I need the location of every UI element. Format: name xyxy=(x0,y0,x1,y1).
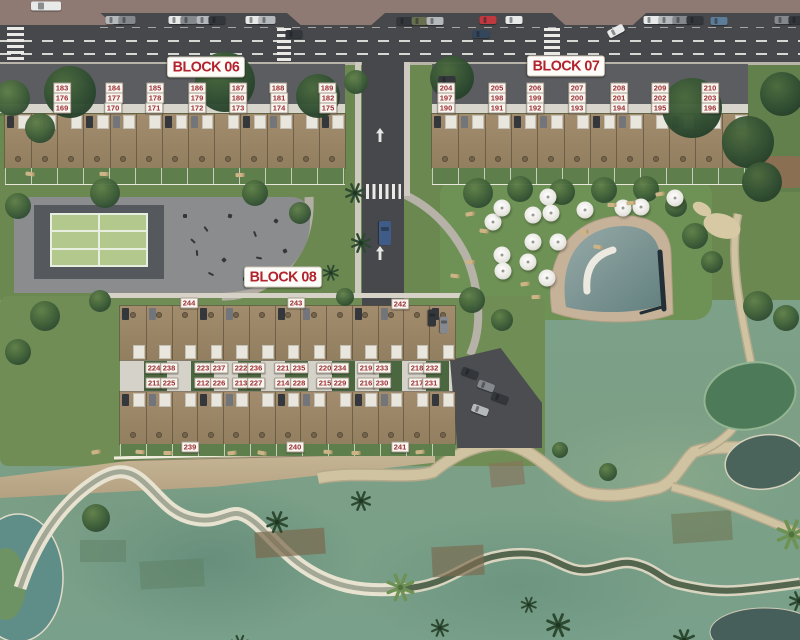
unit-terrace xyxy=(391,393,402,407)
sun-lounger-icon xyxy=(531,295,540,299)
garden-table-icon xyxy=(329,156,335,162)
tree-icon xyxy=(82,504,110,532)
garden-table-icon xyxy=(388,312,394,318)
unit-label-170[interactable]: 170 xyxy=(104,103,122,114)
car-icon xyxy=(200,308,207,320)
unit-label-226[interactable]: 226 xyxy=(210,378,228,389)
housing-unit xyxy=(240,114,266,168)
tree-icon xyxy=(773,305,799,331)
unit-terrace xyxy=(604,115,616,129)
tree-icon xyxy=(89,290,111,312)
unit-terrace xyxy=(262,393,273,407)
housing-unit xyxy=(110,114,136,168)
unit-terrace xyxy=(202,115,214,129)
garden-table-icon xyxy=(414,432,420,438)
sun-lounger-icon xyxy=(352,451,361,455)
tree-icon xyxy=(742,162,782,202)
car-icon xyxy=(200,394,207,406)
car-icon xyxy=(619,116,626,128)
pond-right xyxy=(722,430,800,495)
tree-icon xyxy=(90,178,120,208)
unit-terrace xyxy=(133,393,145,407)
unit-label-190[interactable]: 190 xyxy=(437,103,455,114)
umbrella-icon xyxy=(494,247,511,264)
garden-table-icon xyxy=(414,312,420,318)
unit-label-221[interactable]: 221 xyxy=(274,363,292,374)
umbrella-icon xyxy=(520,254,537,271)
unit-label-219[interactable]: 219 xyxy=(357,363,375,374)
site-plan: BLOCK 06 BLOCK 07 BLOCK 08 1831841851861… xyxy=(0,0,800,640)
sun-lounger-icon xyxy=(235,173,244,177)
block-08-title: BLOCK 08 xyxy=(244,267,322,288)
crosswalk xyxy=(7,27,24,62)
car-icon xyxy=(149,308,156,320)
garden-table-icon xyxy=(259,432,265,438)
car-icon xyxy=(286,30,303,38)
car-windshield xyxy=(250,17,253,23)
garden-table-icon xyxy=(15,156,21,162)
umbrella-icon xyxy=(539,270,556,287)
sidewalk-bulge xyxy=(0,13,114,25)
car-icon xyxy=(540,116,547,128)
housing-unit xyxy=(319,114,345,168)
unit-label-227[interactable]: 227 xyxy=(247,378,265,389)
unit-terrace xyxy=(185,345,196,359)
garden-table-icon xyxy=(285,432,291,438)
car-icon xyxy=(379,221,391,245)
tree-icon xyxy=(722,116,774,168)
garden-table-icon xyxy=(522,156,528,162)
car-windshield xyxy=(475,406,480,412)
garden-table-icon xyxy=(225,156,231,162)
garden-table-icon xyxy=(495,156,501,162)
garden-table-icon xyxy=(156,312,162,318)
lane-divider xyxy=(0,40,800,42)
unit-label-232[interactable]: 232 xyxy=(423,363,441,374)
housing-unit xyxy=(590,114,616,168)
garden-table-icon xyxy=(362,432,368,438)
car-windshield xyxy=(484,17,487,23)
housing-unit xyxy=(458,114,484,168)
unit-terrace xyxy=(314,345,325,359)
sun-lounger-icon xyxy=(607,203,616,207)
tree-icon xyxy=(701,251,723,273)
unit-terrace xyxy=(340,345,351,359)
tree-icon xyxy=(242,180,268,206)
car-windshield xyxy=(263,17,266,23)
unit-label-236[interactable]: 236 xyxy=(247,363,265,374)
garden-table-icon xyxy=(251,156,257,162)
unit-terrace xyxy=(211,393,222,407)
car-icon xyxy=(209,16,226,24)
car-icon xyxy=(480,16,497,24)
unit-terrace xyxy=(332,115,344,129)
unit-label-192[interactable]: 192 xyxy=(526,103,544,114)
unit-terrace xyxy=(176,115,188,129)
garden-table-icon xyxy=(362,312,368,318)
unit-label-216[interactable]: 216 xyxy=(357,378,375,389)
unit-label-233[interactable]: 233 xyxy=(373,363,391,374)
car-icon xyxy=(506,16,523,24)
tree-icon xyxy=(289,202,311,224)
car-windshield xyxy=(441,321,447,324)
housing-unit xyxy=(146,306,172,360)
unit-terrace xyxy=(443,345,454,359)
garden-table-icon xyxy=(653,156,659,162)
garden-table-icon xyxy=(208,432,214,438)
unit-terrace xyxy=(365,393,376,407)
car-icon xyxy=(381,308,388,320)
car-icon xyxy=(122,308,129,320)
unit-label-172[interactable]: 172 xyxy=(188,103,206,114)
car-icon xyxy=(303,394,310,406)
car-icon xyxy=(181,16,198,24)
unit-label-228[interactable]: 228 xyxy=(290,378,308,389)
tree-icon xyxy=(591,177,617,203)
car-icon xyxy=(278,394,285,406)
sun-lounger-icon xyxy=(415,450,424,455)
garden-table-icon xyxy=(440,432,446,438)
housing-unit xyxy=(564,114,590,168)
garden-table-icon xyxy=(388,432,394,438)
garden-table-icon xyxy=(199,156,205,162)
garden-table-icon xyxy=(68,156,74,162)
unit-label-238[interactable]: 238 xyxy=(160,363,178,374)
dirt-patch xyxy=(431,545,484,578)
unit-label-191[interactable]: 191 xyxy=(488,103,506,114)
tree-icon xyxy=(459,287,485,313)
housing-unit xyxy=(162,114,188,168)
car-windshield xyxy=(793,17,796,23)
unit-label-242[interactable]: 242 xyxy=(391,299,409,310)
tree-icon xyxy=(336,288,354,306)
housing-unit xyxy=(249,306,275,360)
tree-icon xyxy=(682,223,708,249)
housing-unit xyxy=(83,114,109,168)
housing-unit xyxy=(223,392,249,444)
unit-terrace xyxy=(525,115,537,129)
unit-label-173[interactable]: 173 xyxy=(229,103,247,114)
unit-label-175[interactable]: 175 xyxy=(319,103,337,114)
entrance-sidewalk xyxy=(404,62,410,196)
unit-terrace xyxy=(211,345,222,359)
unit-label-223[interactable]: 223 xyxy=(194,363,212,374)
car-windshield xyxy=(429,314,435,317)
housing-unit xyxy=(214,114,240,168)
car-icon xyxy=(270,116,277,128)
unit-terrace xyxy=(262,345,273,359)
unit-label-234[interactable]: 234 xyxy=(331,363,349,374)
car-icon xyxy=(191,116,198,128)
unit-label-231[interactable]: 231 xyxy=(422,378,440,389)
housing-unit xyxy=(172,392,198,444)
garden-table-icon xyxy=(233,312,239,318)
car-windshield xyxy=(416,18,419,24)
sidewalk-strip xyxy=(0,0,800,13)
umbrella-icon xyxy=(550,234,567,251)
car-icon xyxy=(119,16,136,24)
unit-terrace xyxy=(185,393,196,407)
car-icon xyxy=(7,116,14,128)
tree-icon xyxy=(344,70,368,94)
unit-label-235[interactable]: 235 xyxy=(290,363,308,374)
car-windshield xyxy=(401,18,404,24)
car-icon xyxy=(259,16,276,24)
car-icon xyxy=(278,308,285,320)
garden-table-icon xyxy=(259,312,265,318)
tree-icon xyxy=(30,301,60,331)
garden-strip xyxy=(5,168,345,184)
unit-terrace xyxy=(314,393,325,407)
unit-terrace xyxy=(236,393,247,407)
housing-unit xyxy=(120,392,146,444)
car-windshield xyxy=(691,17,694,23)
unit-label-237[interactable]: 237 xyxy=(210,363,228,374)
entrance-road xyxy=(362,60,404,306)
housing-unit xyxy=(120,306,146,360)
garden-table-icon xyxy=(94,156,100,162)
unit-label-214[interactable]: 214 xyxy=(274,378,292,389)
housing-unit xyxy=(616,114,642,168)
housing-unit xyxy=(197,392,223,444)
car-icon xyxy=(432,394,439,406)
housing-unit xyxy=(429,392,455,444)
unit-terrace xyxy=(159,345,170,359)
housing-unit xyxy=(485,114,511,168)
tree-icon xyxy=(599,463,617,481)
housing-unit xyxy=(300,306,326,360)
tree-icon xyxy=(25,113,55,143)
unit-terrace xyxy=(443,393,454,407)
unit-terrace xyxy=(280,115,292,129)
car-windshield xyxy=(495,394,500,400)
car-icon xyxy=(461,116,468,128)
unit-terrace xyxy=(133,345,145,359)
car-icon xyxy=(31,2,61,11)
garden-table-icon xyxy=(120,156,126,162)
car-windshield xyxy=(185,17,188,23)
umbrella-icon xyxy=(525,234,542,251)
sun-lounger-icon xyxy=(99,172,108,176)
dirt-patch xyxy=(489,460,525,487)
rough-patch xyxy=(671,510,733,544)
car-icon xyxy=(428,310,436,327)
entrance-sidewalk xyxy=(355,62,361,294)
garden-table-icon xyxy=(156,432,162,438)
tree-icon xyxy=(760,72,800,116)
tree-icon xyxy=(463,178,493,208)
rough-patch xyxy=(139,558,204,589)
car-windshield xyxy=(677,17,680,23)
garden-table-icon xyxy=(601,156,607,162)
block-08-bottom-row xyxy=(120,392,455,444)
garden-table-icon xyxy=(182,312,188,318)
unit-label-225[interactable]: 225 xyxy=(160,378,178,389)
tree-icon xyxy=(507,176,533,202)
tree-icon xyxy=(743,291,773,321)
garden-table-icon xyxy=(172,156,178,162)
unit-label-243[interactable]: 243 xyxy=(287,298,305,309)
unit-terrace xyxy=(159,393,170,407)
creek xyxy=(20,472,400,590)
car-windshield xyxy=(510,17,513,23)
garden-table-icon xyxy=(627,156,633,162)
car-icon xyxy=(122,394,129,406)
playground-equipment-icon xyxy=(183,214,187,218)
sun-lounger-icon xyxy=(163,451,172,455)
unit-terrace xyxy=(97,115,109,129)
housing-unit xyxy=(352,306,378,360)
car-icon xyxy=(355,394,362,406)
unit-terrace xyxy=(123,115,135,129)
sun-lounger-icon xyxy=(323,450,332,455)
unit-label-174[interactable]: 174 xyxy=(270,103,288,114)
garden-table-icon xyxy=(442,156,448,162)
car-windshield xyxy=(648,17,651,23)
garden-table-icon xyxy=(548,156,554,162)
housing-unit xyxy=(537,114,563,168)
car-windshield xyxy=(465,369,470,375)
unit-label-229[interactable]: 229 xyxy=(331,378,349,389)
unit-label-194[interactable]: 194 xyxy=(610,103,628,114)
unit-terrace xyxy=(498,115,510,129)
unit-terrace xyxy=(288,393,299,407)
car-icon xyxy=(149,394,156,406)
garden-table-icon xyxy=(42,156,48,162)
car-windshield xyxy=(213,17,216,23)
paddle-court xyxy=(50,213,148,267)
unit-terrace xyxy=(288,345,299,359)
housing-unit xyxy=(432,114,458,168)
unit-terrace xyxy=(551,115,563,129)
unit-label-241[interactable]: 241 xyxy=(391,442,409,453)
unit-label-239[interactable]: 239 xyxy=(181,442,199,453)
unit-label-171[interactable]: 171 xyxy=(145,103,163,114)
car-windshield xyxy=(201,17,204,23)
garden-table-icon xyxy=(233,432,239,438)
car-icon xyxy=(226,394,233,406)
unit-terrace xyxy=(472,115,484,129)
garden-table-icon xyxy=(182,432,188,438)
umbrella-icon xyxy=(525,207,542,224)
sun-lounger-icon xyxy=(135,450,144,455)
housing-unit xyxy=(188,114,214,168)
rough-patch xyxy=(80,540,126,562)
umbrella-icon xyxy=(495,263,512,280)
sun-lounger-icon xyxy=(479,229,488,234)
unit-label-196[interactable]: 196 xyxy=(701,103,719,114)
housing-unit xyxy=(378,392,404,444)
unit-label-193[interactable]: 193 xyxy=(568,103,586,114)
housing-unit xyxy=(249,392,275,444)
garden-table-icon xyxy=(574,156,580,162)
garden-table-icon xyxy=(277,156,283,162)
car-windshield xyxy=(123,17,126,23)
block-08-top-row xyxy=(120,306,455,360)
unit-label-195[interactable]: 195 xyxy=(651,103,669,114)
car-icon xyxy=(593,116,600,128)
housing-unit xyxy=(223,306,249,360)
housing-unit xyxy=(146,392,172,444)
housing-unit xyxy=(136,114,162,168)
car-windshield xyxy=(110,17,113,23)
housing-unit xyxy=(197,306,223,360)
car-windshield xyxy=(715,18,718,24)
unit-label-244[interactable]: 244 xyxy=(180,298,198,309)
umbrella-icon xyxy=(667,190,684,207)
garden-table-icon xyxy=(208,312,214,318)
unit-label-240[interactable]: 240 xyxy=(286,442,304,453)
unit-terrace xyxy=(630,115,642,129)
garden-table-icon xyxy=(680,156,686,162)
swimming-pool xyxy=(550,216,673,322)
car-windshield xyxy=(477,31,480,37)
car-icon xyxy=(687,16,704,24)
car-icon xyxy=(355,308,362,320)
housing-unit xyxy=(172,306,198,360)
unit-terrace xyxy=(417,345,428,359)
umbrella-icon xyxy=(577,202,594,219)
car-icon xyxy=(165,116,172,128)
car-icon xyxy=(427,17,444,25)
unit-terrace xyxy=(228,115,240,129)
housing-unit xyxy=(275,392,301,444)
car-windshield xyxy=(290,31,293,37)
unit-terrace xyxy=(577,115,589,129)
car-icon xyxy=(711,17,728,25)
garden-table-icon xyxy=(337,312,343,318)
car-windshield xyxy=(481,382,486,388)
car-icon xyxy=(226,308,233,320)
housing-unit xyxy=(57,114,83,168)
garden-table-icon xyxy=(706,156,712,162)
car-icon xyxy=(303,308,310,320)
housing-unit xyxy=(267,114,293,168)
garden-table-icon xyxy=(311,432,317,438)
pond-bottom xyxy=(710,608,800,640)
unit-label-230[interactable]: 230 xyxy=(373,378,391,389)
car-windshield xyxy=(38,3,43,9)
golf-green xyxy=(698,354,800,438)
sun-lounger-icon xyxy=(626,201,635,206)
playground-equipment-icon xyxy=(196,250,199,256)
housing-unit xyxy=(403,306,429,360)
car-icon xyxy=(381,394,388,406)
garden-table-icon xyxy=(130,432,136,438)
garden-table-icon xyxy=(285,312,291,318)
unit-terrace xyxy=(391,345,402,359)
car-icon xyxy=(86,116,93,128)
car-windshield xyxy=(381,227,390,231)
garden-table-icon xyxy=(469,156,475,162)
sidewalk-bulge xyxy=(552,13,646,25)
unit-terrace xyxy=(417,393,428,407)
parking-bay-line xyxy=(100,27,800,28)
garden-table-icon xyxy=(303,156,309,162)
sidewalk-bulge xyxy=(287,13,385,25)
unit-terrace xyxy=(254,115,266,129)
housing-unit xyxy=(403,392,429,444)
unit-terrace xyxy=(340,393,351,407)
car-windshield xyxy=(173,17,176,23)
car-icon xyxy=(434,116,441,128)
garden-table-icon xyxy=(337,432,343,438)
umbrella-icon xyxy=(494,200,511,217)
car-icon xyxy=(473,30,490,38)
unit-terrace xyxy=(445,115,457,129)
unit-label-212[interactable]: 212 xyxy=(194,378,212,389)
unit-label-169[interactable]: 169 xyxy=(53,103,71,114)
